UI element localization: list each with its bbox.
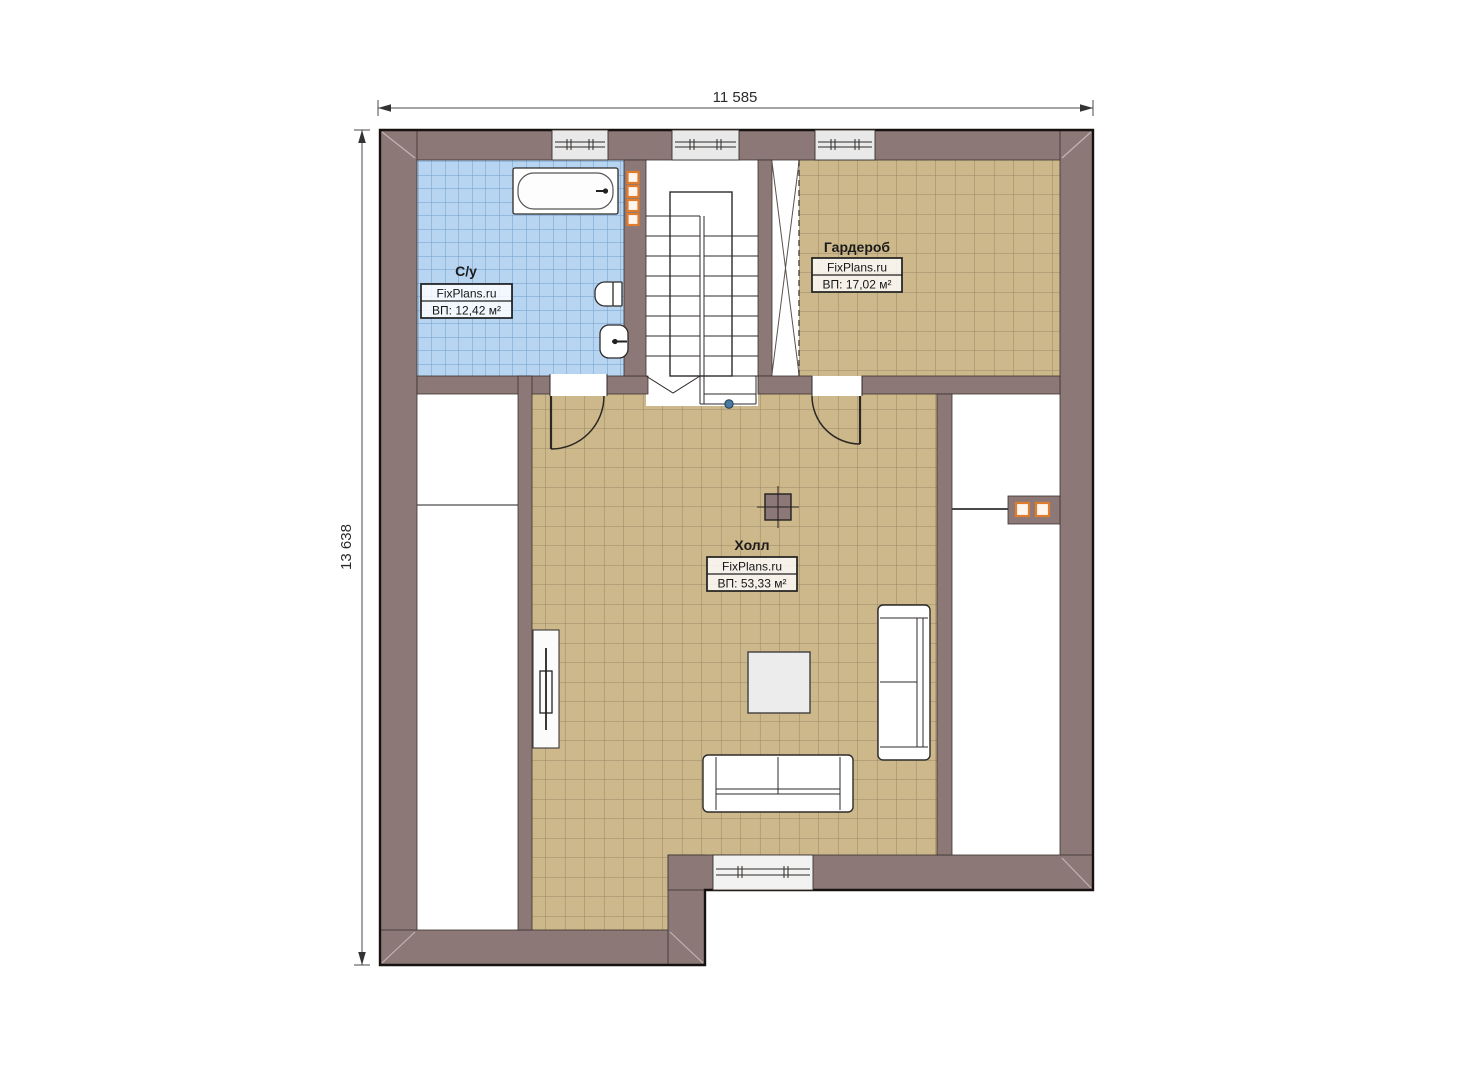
wardrobe-area: ВП: 17,02 м² xyxy=(823,278,892,292)
right-storage-room-floor xyxy=(952,394,1060,855)
wall-wardrobe-bottom-b xyxy=(862,376,1060,394)
left-storage-room-floor xyxy=(417,394,518,930)
wall-left xyxy=(380,130,417,965)
wall-shaft-left xyxy=(758,160,772,376)
dimension-arrow-top xyxy=(358,130,366,143)
bathroom-brand: FixPlans.ru xyxy=(436,287,496,301)
hall-name: Холл xyxy=(734,537,769,553)
floor-plan-page: 11 585 13 638 xyxy=(0,0,1473,1080)
toilet xyxy=(595,282,622,306)
wall-wardrobe-bottom-a xyxy=(758,376,812,394)
wall-bathroom-bottom-b xyxy=(607,376,648,394)
stair-handrail-node xyxy=(725,400,733,408)
window-top-3 xyxy=(815,130,875,160)
floor-plan-drawing: 11 585 13 638 xyxy=(0,0,1473,1080)
hall-area: ВП: 53,33 м² xyxy=(718,577,787,591)
wall-left-room-right xyxy=(518,376,532,930)
dimension-top: 11 585 xyxy=(378,89,1093,116)
window-top-1 xyxy=(552,130,608,160)
dimension-arrow-bottom xyxy=(358,952,366,965)
hall-brand: FixPlans.ru xyxy=(722,560,782,574)
window-bottom xyxy=(713,855,813,890)
bathroom-name: С/у xyxy=(455,263,477,279)
wardrobe-label: Гардероб FixPlans.ru ВП: 17,02 м² xyxy=(812,239,902,292)
stairwell-floor xyxy=(646,160,758,406)
bathtub xyxy=(513,168,618,214)
bathroom-area: ВП: 12,42 м² xyxy=(432,304,501,318)
wardrobe-brand: FixPlans.ru xyxy=(827,261,887,275)
sink xyxy=(600,325,628,358)
wall-right xyxy=(1060,130,1093,890)
dimension-arrow-right xyxy=(1080,104,1093,112)
wardrobe-name: Гардероб xyxy=(824,239,891,255)
wall-bottom-left xyxy=(380,930,705,965)
hall-floor xyxy=(532,392,937,930)
dimension-top-label: 11 585 xyxy=(713,89,758,106)
radiator xyxy=(533,630,559,748)
dimension-left-label: 13 638 xyxy=(338,524,355,570)
coffee-table xyxy=(748,652,810,713)
dimension-left: 13 638 xyxy=(338,130,370,965)
window-top-2 xyxy=(672,130,739,160)
sofa-bottom xyxy=(703,755,853,812)
sofa-right xyxy=(878,605,930,760)
wall-right-room-left xyxy=(937,394,952,855)
dimension-arrow-left xyxy=(378,104,391,112)
